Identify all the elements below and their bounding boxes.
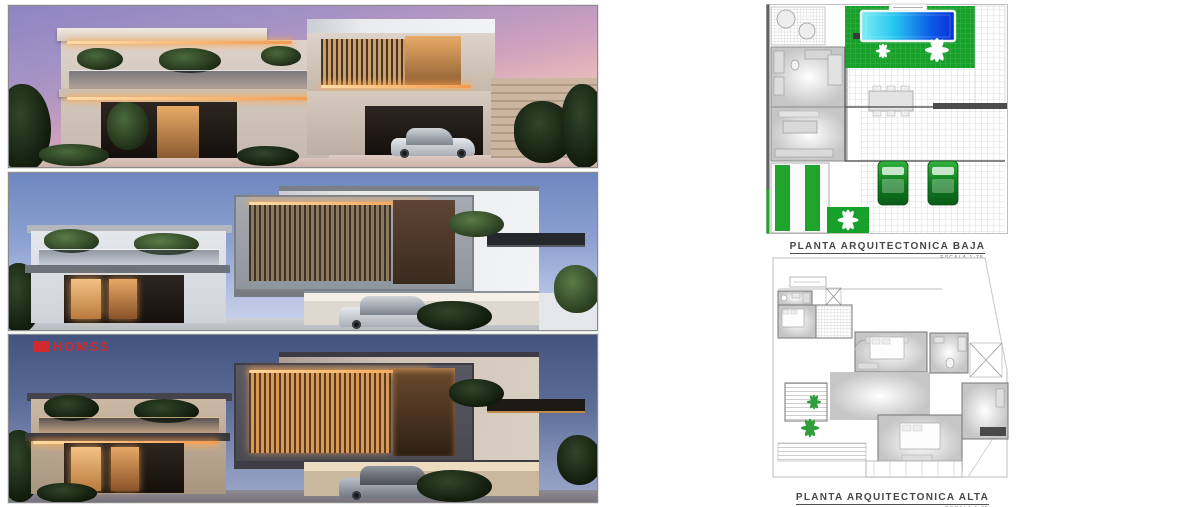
lit-window [111,447,139,491]
render-panel-evening [8,172,598,331]
wood-panel [393,200,455,284]
balcony-underlight [67,97,317,100]
tree-patch [771,7,825,45]
window-underlight [321,85,471,88]
slat-window [249,205,391,281]
shrub [417,301,492,331]
bathroom-bottom-right [962,383,1008,439]
tree-right [561,84,598,168]
balcony-glass-rail [39,249,219,265]
car-wheel [352,320,361,329]
render-column: HOMSS [8,5,598,503]
balcony-plant [77,48,123,70]
ground-plan-title: PLANTA ARQUITECTONICA BAJA [790,241,986,254]
car-wheel [400,149,409,158]
thick-wall [933,103,1007,109]
car-wheel [457,149,466,158]
car-wheel [352,491,361,500]
balcony-plant [261,46,301,66]
palm-right [557,435,598,485]
bathroom-kitchen-rooms [771,47,847,107]
shrub [39,144,109,166]
balcony-glass-rail [39,417,219,433]
shrub [237,146,299,166]
soffit-light [67,41,292,44]
car-cabin [406,128,453,145]
roof-plant [449,379,504,407]
palm-right [554,265,598,313]
roof-plant [449,211,504,237]
lit-window [109,279,137,319]
terrace-band [778,443,866,461]
roof-edge [279,352,539,357]
hall-landing [830,372,930,420]
roof-edge [279,186,539,191]
stairs-upper [816,305,852,338]
car-silver [391,127,475,158]
bedroom-b [855,332,927,372]
car-green-icon [928,161,958,205]
homss-logo-icon [33,341,49,352]
bedroom-a [778,305,816,338]
roof-slab [57,28,267,41]
balcony-slab [25,265,230,273]
entry-door [157,106,199,158]
slit-window [487,233,585,247]
upper-plan-title: PLANTA ARQUITECTONICA ALTA [796,492,989,505]
balcony-slab [59,89,331,97]
floor-plan-upper [770,255,1015,490]
homss-watermark: HOMSS [33,339,111,354]
wood-panel [405,36,461,88]
car-green-icon [878,161,908,205]
balcony-slab [25,433,230,441]
bathroom-right [930,333,968,373]
render-panel-night: HOMSS [8,334,598,503]
floor-plan-ground [765,3,1010,241]
balcony-glass-rail [69,70,327,89]
shrub [37,483,97,503]
courtyard-tree [107,102,149,150]
homss-logo-text: HOMSS [53,339,111,354]
dining-set [869,86,913,116]
render-panel-dusk [8,5,598,168]
lit-window [71,279,101,319]
upper-roof-fascia [307,19,495,33]
slit-window [487,399,585,413]
shrub [417,470,492,502]
closet-band [866,461,962,477]
bathroom-top [778,291,812,305]
slat-window-lit [249,373,391,453]
ground-plan-drawing [765,3,1010,236]
upper-plan-drawing [770,255,1015,485]
living-rooms [771,107,847,161]
wood-panel [393,368,455,456]
upper-plan-caption: PLANTA ARQUITECTONICA ALTA ESCALA 1:75 [770,487,1015,507]
listing-collage: HOMSS [0,0,1200,507]
